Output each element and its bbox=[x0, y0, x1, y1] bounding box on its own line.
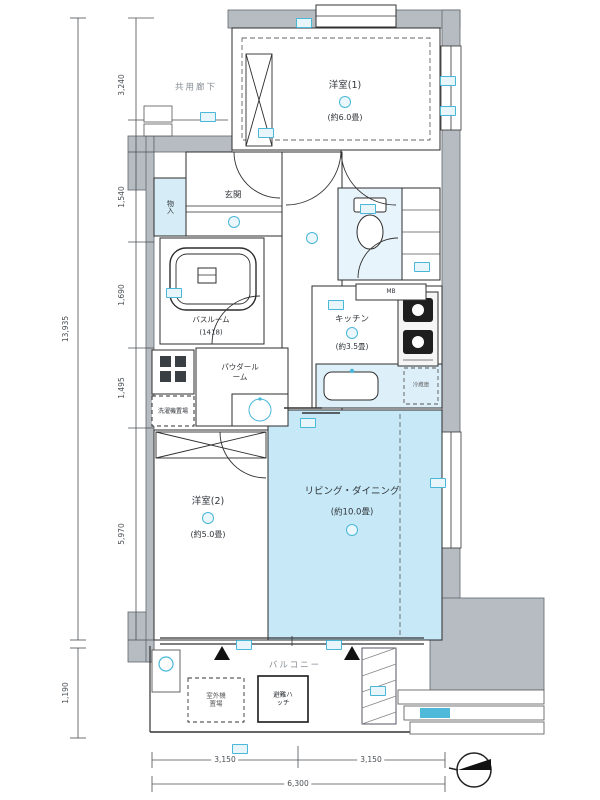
kitchen-label: キッチン bbox=[335, 314, 369, 325]
floor-plan: 共用廊下 洋室(1) (約6.0畳) 玄関 物入 バスルーム (1418) パウ… bbox=[0, 0, 600, 800]
dim-left-seg1: 3,240 bbox=[117, 71, 127, 98]
spec-tag bbox=[166, 288, 182, 298]
top-window bbox=[316, 5, 396, 27]
escape-hatch-label: 避難ハッチ bbox=[272, 691, 294, 708]
washbasin-icon bbox=[232, 394, 288, 426]
dim-left-total: 13,935 bbox=[61, 313, 71, 345]
spec-tag bbox=[328, 300, 344, 310]
outdoor-unit-label: 室外機置場 bbox=[205, 692, 227, 709]
spec-tag bbox=[440, 106, 456, 116]
living-dining-size: (約10.0畳) bbox=[331, 507, 374, 518]
spec-tag bbox=[200, 112, 216, 122]
spec-tag bbox=[300, 418, 316, 428]
sink-icon bbox=[324, 369, 378, 400]
mb-label: MB bbox=[386, 288, 395, 296]
bedroom2-size: (約5.0畳) bbox=[191, 530, 226, 540]
kitchen-size: (約3.5畳) bbox=[336, 342, 369, 352]
fridge-label: 冷蔵庫 bbox=[413, 382, 430, 389]
dim-left-seg4: 1,495 bbox=[117, 374, 127, 401]
laundry-label: 洗濯機置場 bbox=[158, 408, 188, 416]
spec-tag bbox=[236, 640, 252, 650]
spec-tag bbox=[296, 18, 312, 28]
room-marker-icon bbox=[228, 216, 240, 228]
room-laundry-shelf bbox=[152, 350, 194, 394]
compass-icon bbox=[449, 753, 491, 787]
bathroom-size: (1418) bbox=[199, 328, 222, 337]
spec-tag bbox=[440, 76, 456, 86]
dim-bottom-left: 3,150 bbox=[211, 755, 238, 765]
entrance-label: 玄関 bbox=[224, 190, 241, 201]
spec-tag bbox=[370, 686, 386, 696]
room-marker-icon bbox=[202, 512, 214, 524]
bedroom1-label: 洋室(1) bbox=[329, 80, 361, 92]
spec-tag bbox=[414, 262, 430, 272]
powder-room-label: パウダールーム bbox=[219, 362, 261, 382]
balcony-structures bbox=[150, 636, 430, 732]
dim-left-seg5: 5,970 bbox=[117, 520, 127, 547]
dim-left-seg3: 1,690 bbox=[117, 281, 127, 308]
bathroom-label: バスルーム bbox=[192, 315, 229, 325]
bedroom2-label: 洋室(2) bbox=[192, 496, 224, 508]
section-panels bbox=[398, 690, 544, 734]
room-marker-icon bbox=[346, 327, 358, 339]
dim-bottom-right: 3,150 bbox=[357, 755, 384, 765]
spec-tag bbox=[258, 128, 274, 138]
spec-tag bbox=[232, 744, 248, 754]
room-marker-icon bbox=[339, 96, 351, 108]
spec-tag bbox=[360, 204, 376, 214]
dim-left-balcony: 1,190 bbox=[61, 679, 71, 706]
dim-left-seg2: 1,540 bbox=[117, 183, 127, 210]
bedroom1-size: (約6.0畳) bbox=[328, 113, 363, 123]
living-dining-label: リビング・ダイニング bbox=[304, 486, 399, 498]
balcony-label: バルコニー bbox=[269, 660, 321, 671]
room-marker-icon bbox=[346, 524, 358, 536]
spec-tag bbox=[430, 478, 446, 488]
dim-bottom-total: 6,300 bbox=[284, 779, 311, 789]
spec-tag bbox=[326, 640, 342, 650]
plan-linework bbox=[0, 0, 600, 800]
stove-icon bbox=[398, 292, 438, 366]
room-marker-icon bbox=[306, 232, 318, 244]
corridor-label: 共用廊下 bbox=[175, 82, 217, 93]
storage-label: 物入 bbox=[165, 200, 174, 214]
